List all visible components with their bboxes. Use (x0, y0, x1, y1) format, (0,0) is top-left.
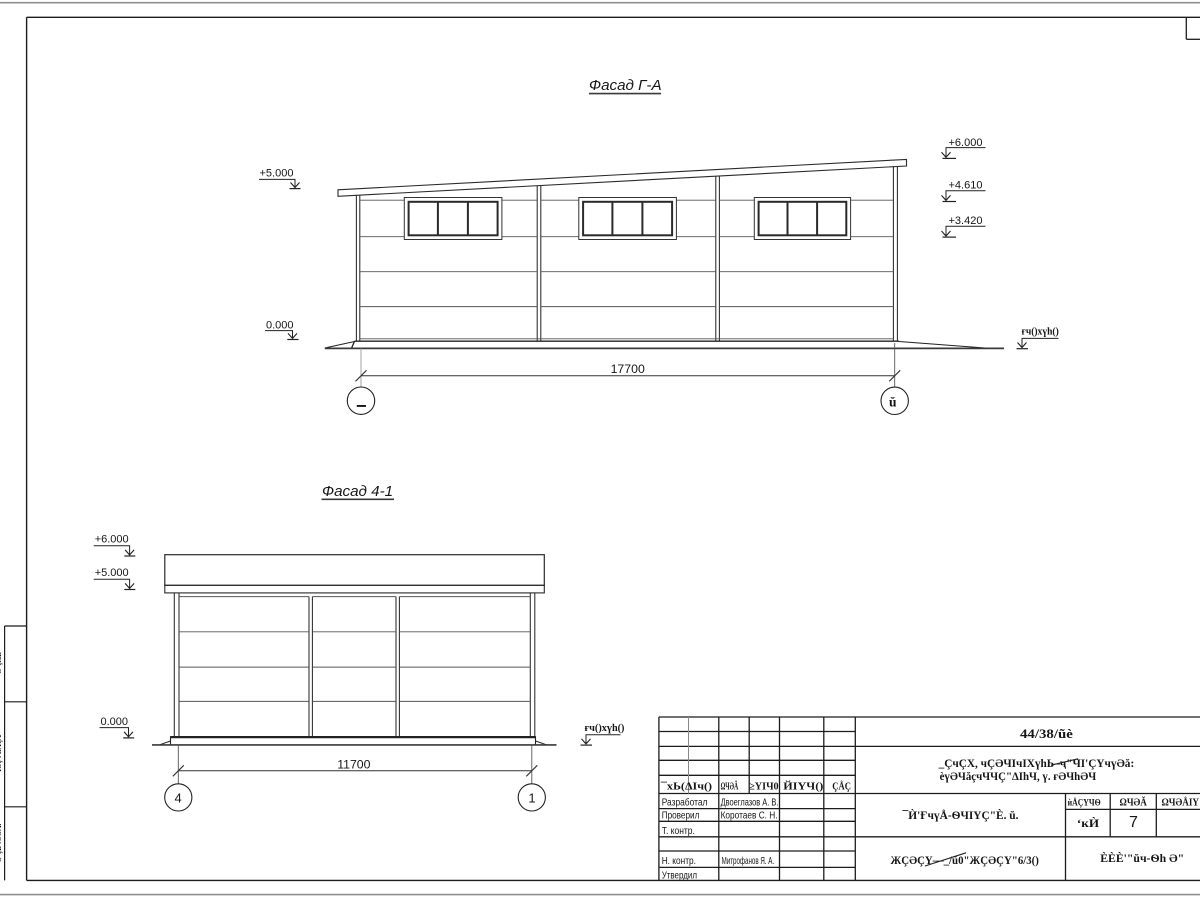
svg-text:0.000: 0.000 (266, 319, 294, 331)
svg-text:1: 1 (528, 790, 535, 805)
svg-text:ÇÅÇ: ÇÅÇ (832, 779, 851, 792)
svg-text:Утвердил: Утвердил (662, 869, 697, 880)
svg-text:ʻкЍ: ʻкЍ (1077, 816, 1099, 829)
svg-text:17700: 17700 (611, 362, 645, 376)
svg-text:ғч()хүһ(): ғч()хүһ() (1022, 326, 1059, 338)
svg-text:Двоеглазов А. В.: Двоеглазов А. В. (721, 796, 779, 808)
svg-text:èүӘЧăçчЧЧÇ"ΔΙһЧ, ү. ғӘЧһӘЧ: èүӘЧăçчЧЧÇ"ΔΙһЧ, ү. ғӘЧһӘЧ (940, 771, 1097, 783)
svg-text:≥ΥΙЧ0: ≥ΥΙЧ0 (749, 781, 778, 792)
svg-text:+4.610: +4.610 (949, 179, 983, 191)
svg-text:+6.000: +6.000 (949, 137, 983, 149)
svg-text:¯хЬ(ΔΙч(): ¯хЬ(ΔΙч() (660, 781, 712, 792)
svg-text:Т. контр.: Т. контр. (662, 825, 695, 837)
svg-text:ѝÅÇΥЧѲ: ѝÅÇΥЧѲ (1068, 797, 1101, 808)
svg-text:ΩЧӘĂ: ΩЧӘĂ (721, 779, 739, 791)
svg-text:Разработал: Разработал (662, 797, 708, 809)
svg-text:Н. контр.: Н. контр. (662, 855, 696, 867)
svg-text:ŭ: ŭ (889, 395, 897, 410)
svg-text:_ÇчÇХ, чÇӘЧΙчΙХүһЬ–ҷ"ЧΙ'ÇΥчүӘă: _ÇчÇХ, чÇӘЧΙчΙХүһЬ–ҷ"ЧΙ'ÇΥчүӘă: (938, 758, 1135, 770)
svg-text:+3.420: +3.420 (949, 215, 983, 227)
svg-text:+6.000: +6.000 (95, 534, 129, 546)
svg-text:44/38/ũè: 44/38/ũè (1020, 727, 1073, 741)
svg-text:Фасад Г-А: Фасад Г-А (589, 77, 662, 94)
svg-text:7: 7 (1129, 814, 1138, 831)
svg-text:Коротаев С. Н.: Коротаев С. Н. (721, 810, 778, 822)
svg-text:Митрофанов Я. А.: Митрофанов Я. А. (722, 854, 774, 866)
svg-text:ЙΙΥЧ(): ЙΙΥЧ() (783, 781, 823, 792)
svg-text:11700: 11700 (337, 757, 370, 771)
svg-text:ΩЧӘĂ: ΩЧӘĂ (1120, 796, 1148, 809)
svg-text:Проверил: Проверил (662, 808, 700, 820)
svg-text:ѲʻçЬ №ӘÅ.: ѲʻçЬ №ӘÅ. (0, 823, 3, 862)
svg-text:4: 4 (175, 790, 182, 805)
svg-text:ЖÇӘÇΥ—_/ũ0"ЖÇӘÇΥ"6/3(): ЖÇӘÇΥ—_/ũ0"ЖÇӘÇΥ"6/3() (890, 855, 1039, 867)
svg-text:Фасад 4-1: Фасад 4-1 (322, 483, 393, 500)
svg-text:ΩЧӘÅΙΥ: ΩЧӘÅΙΥ (1162, 796, 1199, 809)
svg-text:+5.000: +5.000 (95, 567, 129, 579)
svg-text:ÈÈÈ'"ŭч-Ѳһ Ә": ÈÈÈ'"ŭч-Ѳһ Ә" (1100, 851, 1184, 865)
svg-text:Ѳʻç.хЬ: Ѳʻç.хЬ (0, 652, 3, 674)
svg-text:ғч()хүһ(): ғч()хүһ() (585, 723, 625, 734)
svg-text:ЧӘçʻ. ѝÅÇΥ: ЧӘçʻ. ѝÅÇΥ (0, 733, 3, 775)
svg-text:¯Ѝ'ҒчүÅ-ѲЧΙΥÇ"È. ŭ.: ¯Ѝ'ҒчүÅ-ѲЧΙΥÇ"È. ŭ. (902, 808, 1019, 822)
svg-text:+5.000: +5.000 (260, 168, 294, 180)
svg-text:0.000: 0.000 (101, 716, 129, 728)
